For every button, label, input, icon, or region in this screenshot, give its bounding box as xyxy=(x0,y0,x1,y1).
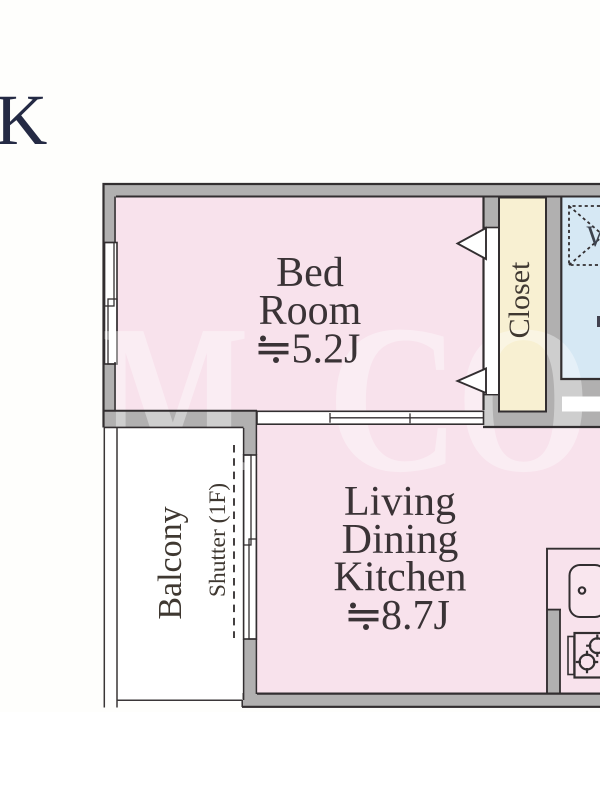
svg-text:M: M xyxy=(100,281,249,516)
svg-text:Shutter (1F): Shutter (1F) xyxy=(205,483,231,597)
svg-text:8.7J: 8.7J xyxy=(381,593,450,639)
svg-text:Closet: Closet xyxy=(503,261,536,338)
svg-text:5.2J: 5.2J xyxy=(292,327,361,373)
svg-text:Balcony: Balcony xyxy=(152,506,189,619)
svg-text:W: W xyxy=(587,220,600,253)
svg-text:K: K xyxy=(0,79,47,160)
